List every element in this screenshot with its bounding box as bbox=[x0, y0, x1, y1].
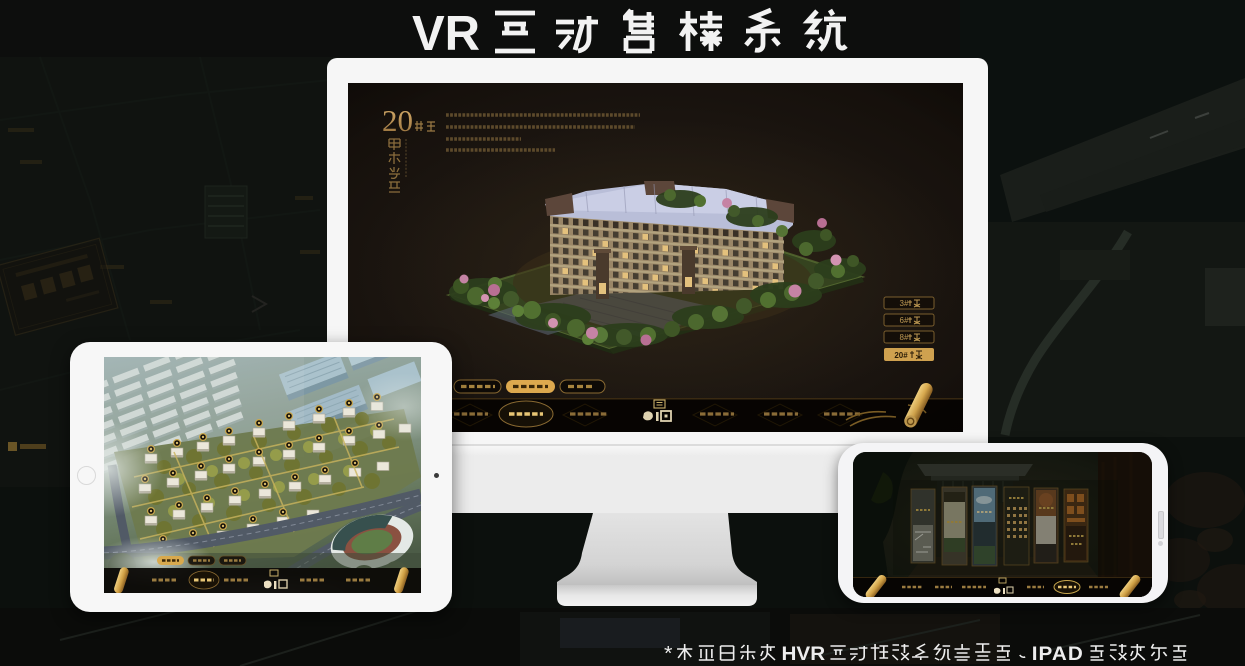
svg-text:*: * bbox=[664, 643, 672, 665]
svg-text:HVR: HVR bbox=[782, 644, 826, 665]
svg-text:IPAD: IPAD bbox=[1032, 644, 1084, 665]
svg-text:VR: VR bbox=[412, 7, 480, 58]
